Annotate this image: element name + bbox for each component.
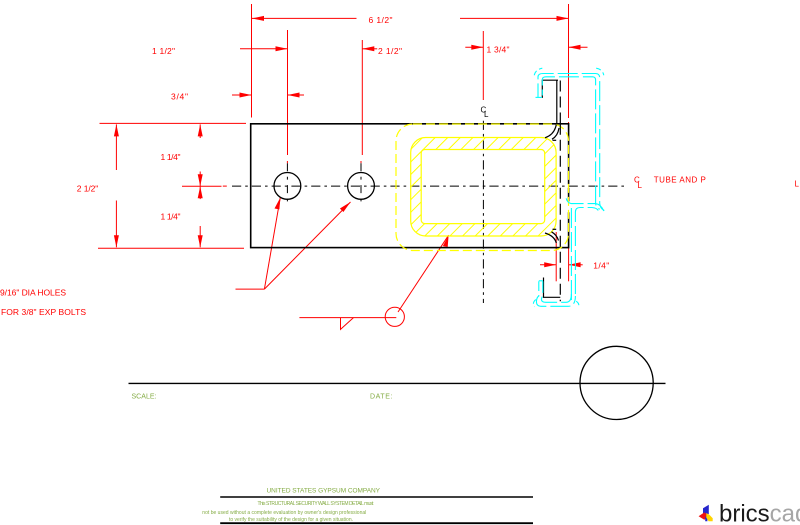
svg-text:bricscad: bricscad xyxy=(719,501,800,525)
svg-text:3/4": 3/4" xyxy=(171,92,188,102)
svg-text:UNITED STATES GYPSUM COMPANY: UNITED STATES GYPSUM COMPANY xyxy=(267,488,381,495)
svg-text:to verify the suitability of t: to verify the suitability of the design … xyxy=(229,517,353,523)
svg-text:2 1/2": 2 1/2" xyxy=(378,46,402,56)
svg-text:SCALE:: SCALE: xyxy=(132,393,157,400)
svg-text:DATE:: DATE: xyxy=(370,393,393,400)
svg-text:9/16" DIA HOLES: 9/16" DIA HOLES xyxy=(0,287,66,297)
svg-text:1 1/2": 1 1/2" xyxy=(152,46,175,56)
svg-text:1 1/4": 1 1/4" xyxy=(161,152,181,162)
svg-text:1/4": 1/4" xyxy=(593,261,609,271)
svg-text:2 1/2": 2 1/2" xyxy=(77,183,99,193)
svg-text:1 1/4": 1 1/4" xyxy=(161,211,181,221)
svg-text:6 1/2": 6 1/2" xyxy=(369,15,393,25)
svg-text:L: L xyxy=(795,179,800,188)
svg-text:TUBE AND P: TUBE AND P xyxy=(654,176,706,185)
svg-text:1 3/4": 1 3/4" xyxy=(487,44,510,54)
svg-text:This STRUCTURAL SECURITY WALL: This STRUCTURAL SECURITY WALL SYSTEM DET… xyxy=(258,501,375,507)
svg-text:FOR 3/8" EXP BOLTS: FOR 3/8" EXP BOLTS xyxy=(1,307,86,317)
svg-text:L: L xyxy=(638,181,643,190)
svg-text:L: L xyxy=(484,110,489,119)
svg-text:not be used without a complete: not be used without a complete evaluatio… xyxy=(202,510,366,516)
